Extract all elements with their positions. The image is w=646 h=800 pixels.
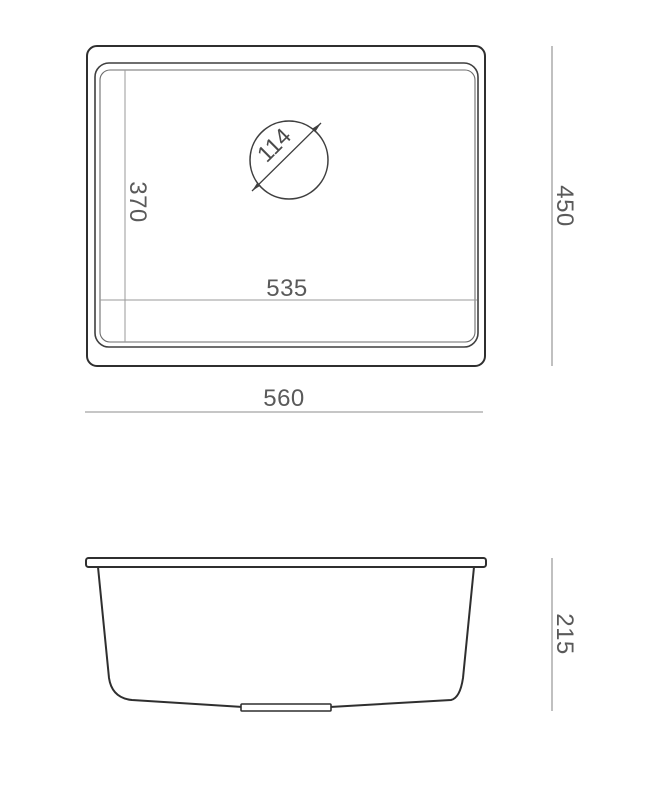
side-view-bowl-outline [98,567,474,707]
side-view-drain-fitting [241,704,331,711]
side-view: 215 [86,558,578,711]
outer-width-dim-label: 560 [263,385,305,412]
drawing-canvas: 370 535 114 450 560 [0,0,646,800]
top-view: 370 535 114 450 560 [85,46,578,412]
outer-depth-dim-label: 450 [551,185,578,227]
height-dim-label: 215 [551,613,578,655]
bowl-width-dim-label: 535 [266,275,308,302]
side-view-rim-flange [86,558,486,567]
sink-dimension-drawing: 370 535 114 450 560 [0,0,646,800]
bowl-depth-dim-label: 370 [124,181,151,223]
